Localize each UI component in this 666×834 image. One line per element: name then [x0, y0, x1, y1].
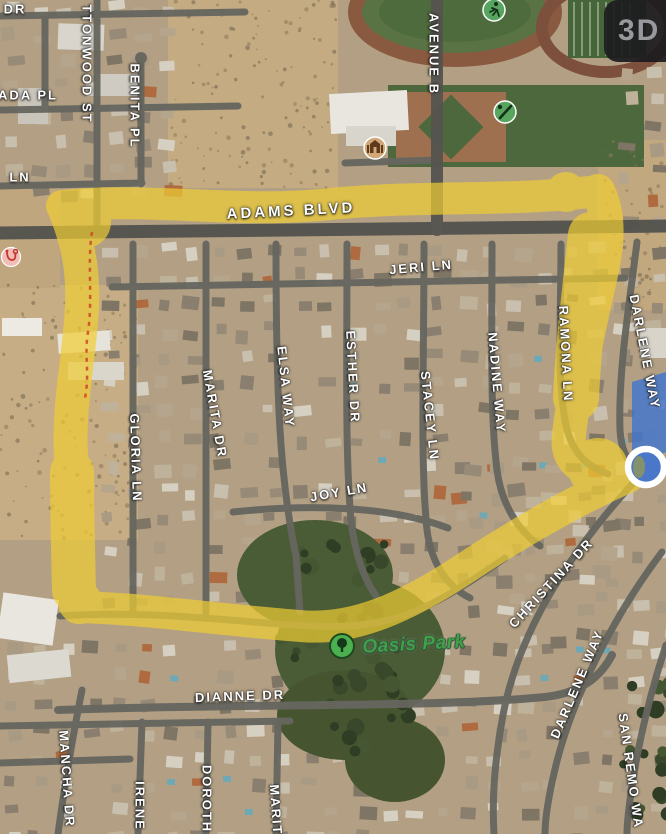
street-label-irene: IRENE [133, 781, 148, 831]
runner-poi-icon[interactable] [483, 0, 505, 21]
street-label-ada-pl: ADA PL [0, 88, 58, 103]
location-marker[interactable] [626, 447, 666, 487]
street-label-partial-ln: LN [9, 170, 30, 185]
street-label-avenue-b: AVENUE B [427, 13, 442, 95]
map-3d-button-label: 3D [618, 14, 660, 48]
street-label-benita-pl: BENITA PL [128, 63, 143, 148]
street-label-dorothy: DOROTH [200, 765, 215, 833]
street-label-cottonwood-st: TTONWOOD ST [80, 4, 95, 123]
street-label-dianne-dr: DIANNE DR [195, 687, 286, 705]
medical-poi-icon[interactable] [2, 248, 21, 267]
map-3d-button[interactable]: 3D [604, 0, 666, 62]
street-label-partial-dr: DR [4, 2, 27, 17]
satellite-map[interactable]: DR ADA PL LN TTONWOOD ST BENITA PL AVENU… [0, 0, 666, 834]
street-label-gloria-ln: GLORIA LN [127, 413, 145, 502]
baseball-poi-icon[interactable] [494, 101, 516, 123]
park-tree-icon[interactable] [330, 634, 354, 658]
school-poi-icon[interactable] [364, 137, 386, 159]
